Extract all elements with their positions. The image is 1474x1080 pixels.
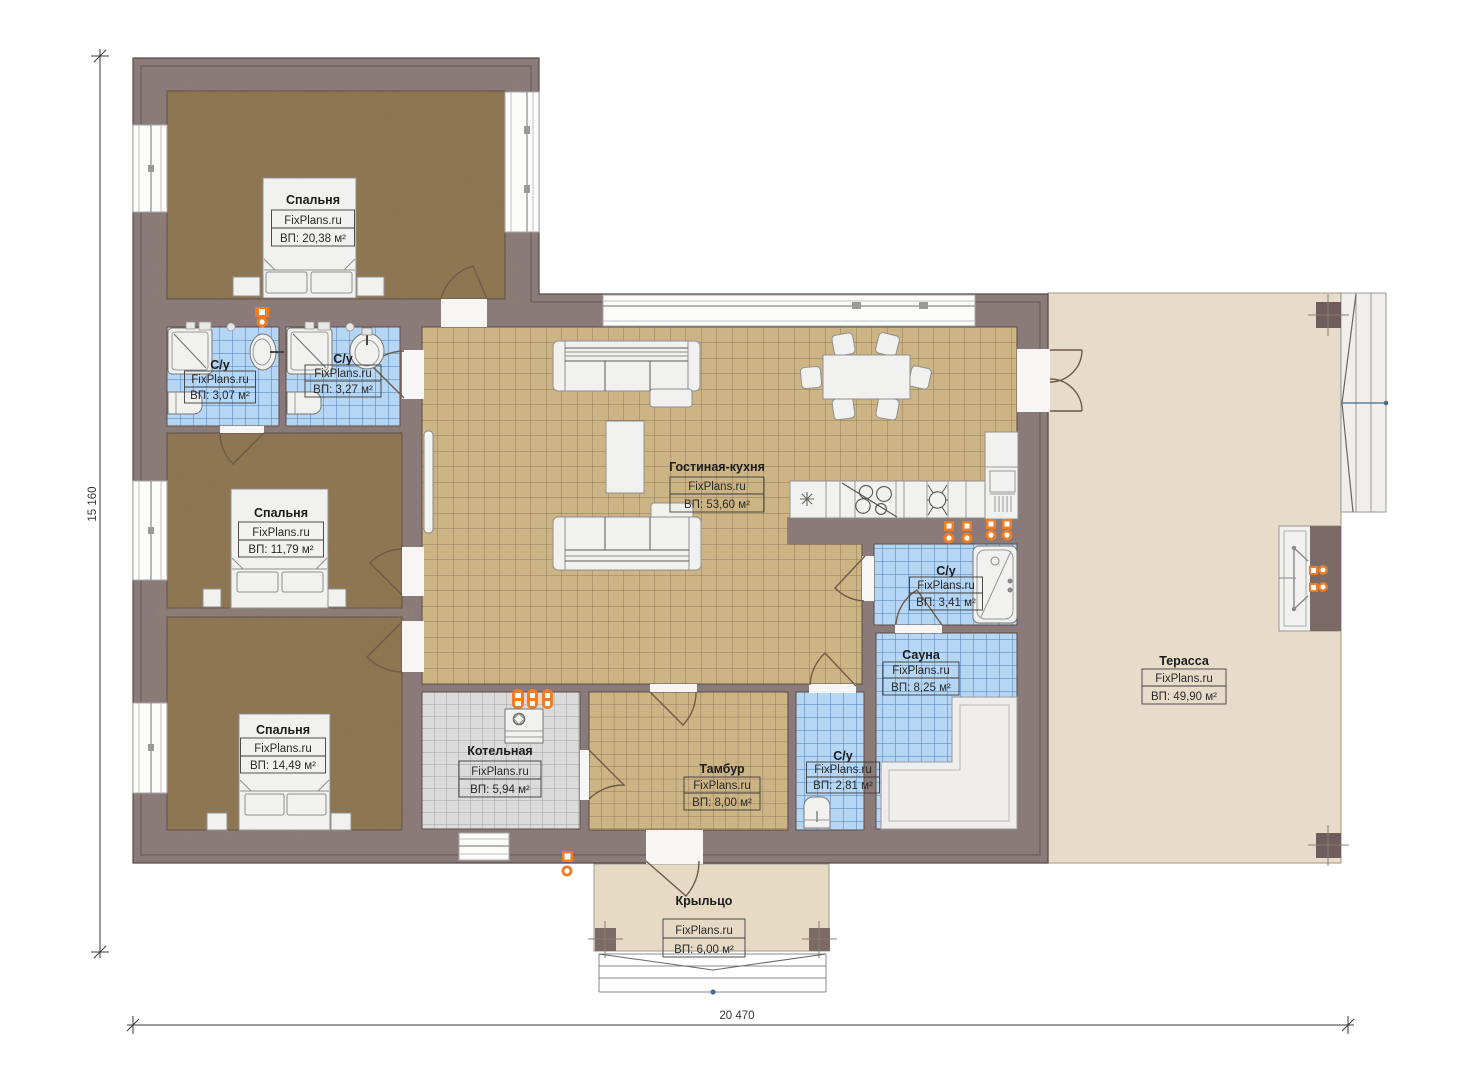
svg-text:FixPlans.ru: FixPlans.ru <box>693 780 751 792</box>
svg-text:Спальня: Спальня <box>256 723 310 737</box>
svg-text:ВП: 53,60 м²: ВП: 53,60 м² <box>684 499 750 511</box>
svg-text:ВП: 3,27 м²: ВП: 3,27 м² <box>313 384 373 396</box>
svg-text:FixPlans.ru: FixPlans.ru <box>688 481 746 493</box>
svg-text:FixPlans.ru: FixPlans.ru <box>314 368 372 380</box>
svg-text:ВП: 11,79 м²: ВП: 11,79 м² <box>248 544 313 556</box>
svg-text:20 470: 20 470 <box>719 1010 754 1022</box>
svg-text:FixPlans.ru: FixPlans.ru <box>917 580 975 592</box>
svg-text:ВП: 3,41 м²: ВП: 3,41 м² <box>916 597 976 609</box>
svg-text:С/у: С/у <box>333 352 353 366</box>
svg-text:ВП: 20,38 м²: ВП: 20,38 м² <box>280 233 346 245</box>
svg-text:ВП: 8,25 м²: ВП: 8,25 м² <box>891 682 951 694</box>
svg-text:FixPlans.ru: FixPlans.ru <box>892 665 950 677</box>
svg-text:FixPlans.ru: FixPlans.ru <box>191 374 249 386</box>
svg-text:FixPlans.ru: FixPlans.ru <box>284 215 342 227</box>
svg-text:ВП: 6,00 м²: ВП: 6,00 м² <box>674 944 734 956</box>
svg-text:ВП: 14,49 м²: ВП: 14,49 м² <box>250 760 316 772</box>
svg-text:Котельная: Котельная <box>467 744 532 758</box>
svg-text:FixPlans.ru: FixPlans.ru <box>254 743 312 755</box>
svg-text:ВП: 5,94 м²: ВП: 5,94 м² <box>470 784 530 796</box>
svg-text:С/у: С/у <box>210 358 230 372</box>
svg-text:Гостиная-кухня: Гостиная-кухня <box>669 460 765 474</box>
svg-text:ВП: 49,90 м²: ВП: 49,90 м² <box>1151 691 1217 703</box>
svg-text:С/у: С/у <box>833 749 853 763</box>
svg-text:Тамбур: Тамбур <box>699 762 745 776</box>
svg-text:ВП: 2,81 м²: ВП: 2,81 м² <box>813 780 873 792</box>
svg-text:FixPlans.ru: FixPlans.ru <box>471 766 529 778</box>
svg-text:ВП: 3,07 м²: ВП: 3,07 м² <box>190 390 250 402</box>
svg-text:FixPlans.ru: FixPlans.ru <box>252 527 310 539</box>
svg-text:Спальня: Спальня <box>254 506 308 520</box>
svg-text:ВП: 8,00 м²: ВП: 8,00 м² <box>692 797 752 809</box>
svg-text:Сауна: Сауна <box>902 648 941 662</box>
svg-text:15 160: 15 160 <box>87 486 99 521</box>
svg-text:Крыльцо: Крыльцо <box>676 894 733 908</box>
svg-text:FixPlans.ru: FixPlans.ru <box>675 925 733 937</box>
svg-text:Терасса: Терасса <box>1159 654 1210 668</box>
svg-text:FixPlans.ru: FixPlans.ru <box>1155 673 1213 685</box>
svg-text:С/у: С/у <box>936 564 956 578</box>
svg-text:Спальня: Спальня <box>286 193 340 207</box>
svg-text:FixPlans.ru: FixPlans.ru <box>814 764 872 776</box>
